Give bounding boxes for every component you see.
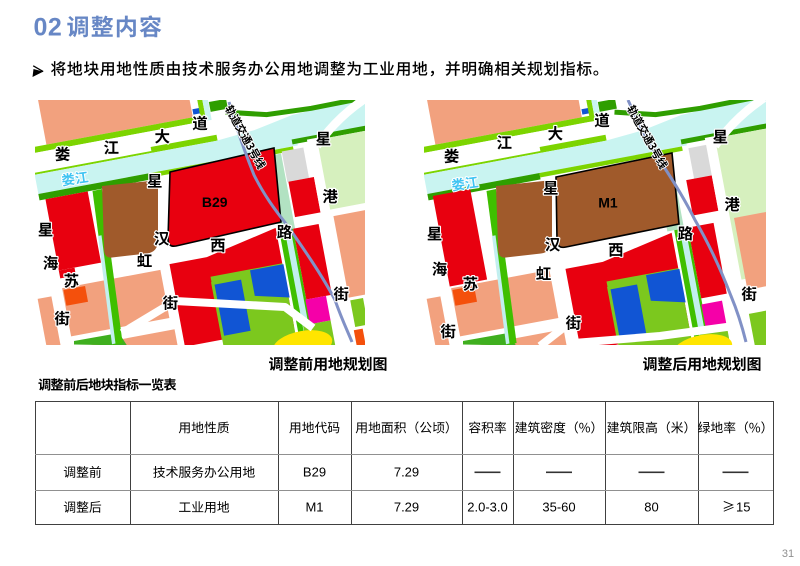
svg-text:80: 80 <box>644 500 658 515</box>
svg-text:M1: M1 <box>598 195 618 211</box>
svg-text:35-60: 35-60 <box>542 500 575 515</box>
svg-text:7.29: 7.29 <box>394 465 419 480</box>
svg-text:15: 15 <box>736 500 750 515</box>
svg-text:M1: M1 <box>305 500 323 515</box>
svg-text:B29: B29 <box>303 465 326 480</box>
svg-text:31: 31 <box>782 548 794 560</box>
svg-text:2.0-3.0: 2.0-3.0 <box>467 500 507 515</box>
svg-text:02: 02 <box>34 13 63 41</box>
svg-text:B29: B29 <box>202 194 228 210</box>
svg-text:7.29: 7.29 <box>394 500 419 515</box>
